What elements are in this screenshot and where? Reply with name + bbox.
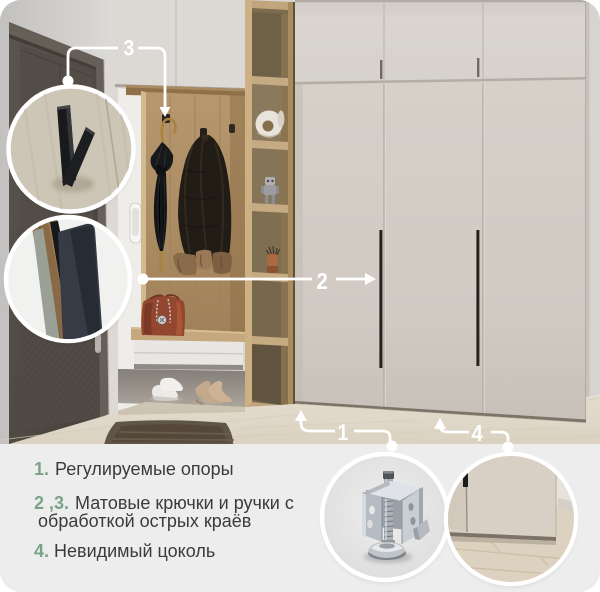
svg-text:Регулируемые опоры: Регулируемые опоры [55, 459, 234, 479]
svg-text:4: 4 [472, 420, 483, 447]
svg-text:Матовые крючки и ручки с: Матовые крючки и ручки с [75, 493, 294, 513]
svg-text:4.: 4. [34, 541, 49, 561]
svg-text:2: 2 [317, 268, 328, 295]
svg-text:Невидимый цоколь: Невидимый цоколь [54, 541, 215, 561]
svg-text:1: 1 [338, 421, 349, 445]
svg-text:1.: 1. [34, 459, 49, 479]
svg-text:2 ,3.: 2 ,3. [34, 493, 69, 513]
svg-text:обработкой острых краёв: обработкой острых краёв [38, 511, 251, 531]
svg-text:3: 3 [124, 36, 135, 60]
